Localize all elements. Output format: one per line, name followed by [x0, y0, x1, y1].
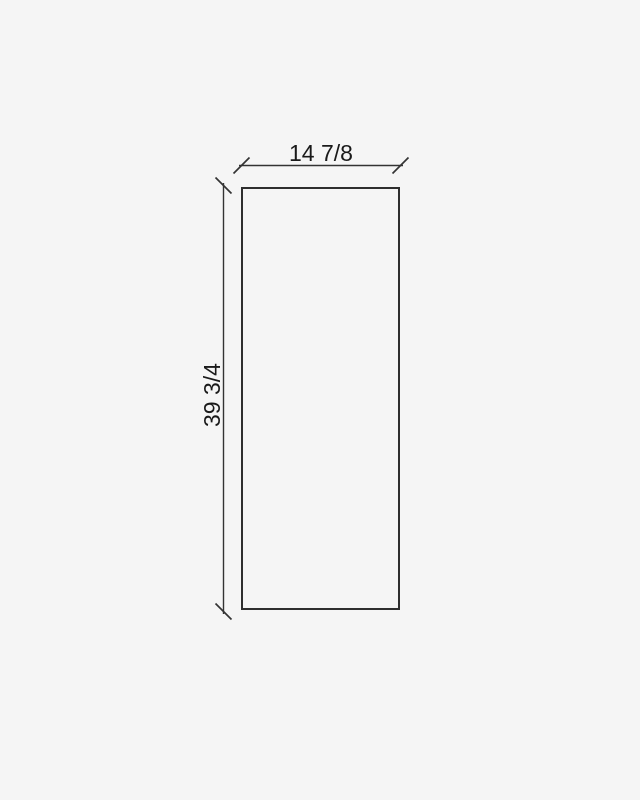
height-dimension: 39 3/4: [199, 178, 232, 620]
height-dimension-label: 39 3/4: [199, 363, 225, 427]
width-dimension-label: 14 7/8: [289, 140, 353, 166]
width-dimension: 14 7/8: [234, 140, 409, 174]
drawing-canvas: 14 7/8 39 3/4: [0, 0, 640, 800]
technical-drawing: 14 7/8 39 3/4: [0, 0, 640, 800]
panel-outline: [242, 188, 399, 609]
